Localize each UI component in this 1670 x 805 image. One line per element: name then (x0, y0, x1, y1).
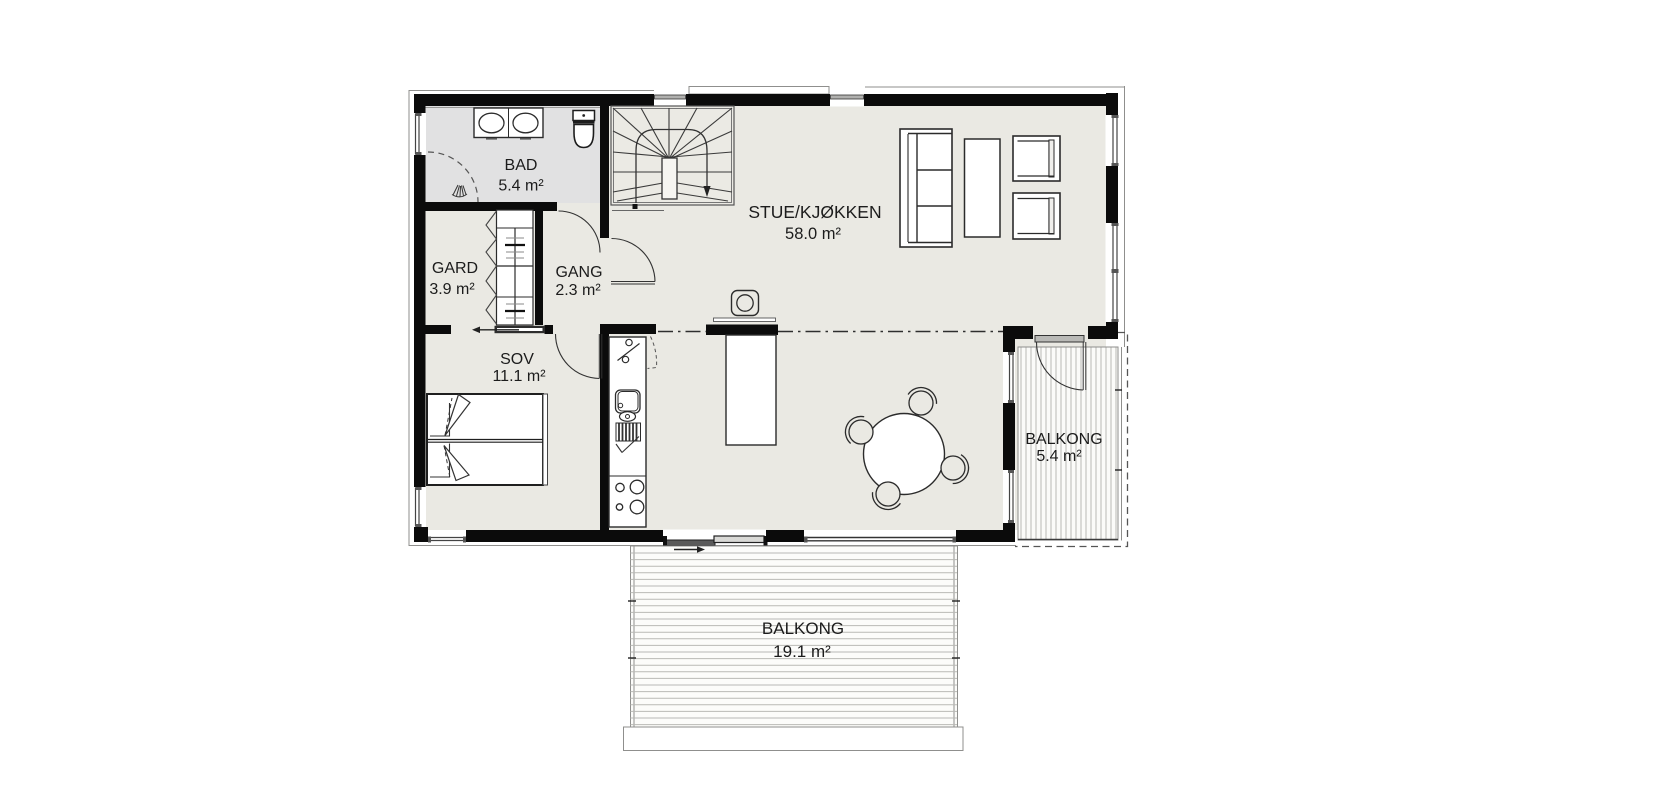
svg-text:STUE/KJØKKEN: STUE/KJØKKEN (748, 202, 881, 222)
svg-text:58.0 m²: 58.0 m² (785, 225, 841, 243)
svg-text:5.4 m²: 5.4 m² (498, 178, 544, 195)
svg-text:GANG: GANG (555, 264, 602, 281)
svg-text:BAD: BAD (505, 157, 538, 174)
svg-text:5.4 m²: 5.4 m² (1036, 448, 1082, 465)
svg-text:BALKONG: BALKONG (762, 619, 844, 638)
svg-text:GARD: GARD (432, 260, 478, 277)
svg-text:19.1 m²: 19.1 m² (773, 642, 831, 661)
svg-text:3.9 m²: 3.9 m² (429, 281, 475, 298)
svg-text:SOV: SOV (500, 351, 534, 368)
svg-text:BALKONG: BALKONG (1025, 431, 1102, 448)
svg-text:2.3 m²: 2.3 m² (555, 282, 601, 299)
svg-text:11.1 m²: 11.1 m² (492, 368, 546, 385)
